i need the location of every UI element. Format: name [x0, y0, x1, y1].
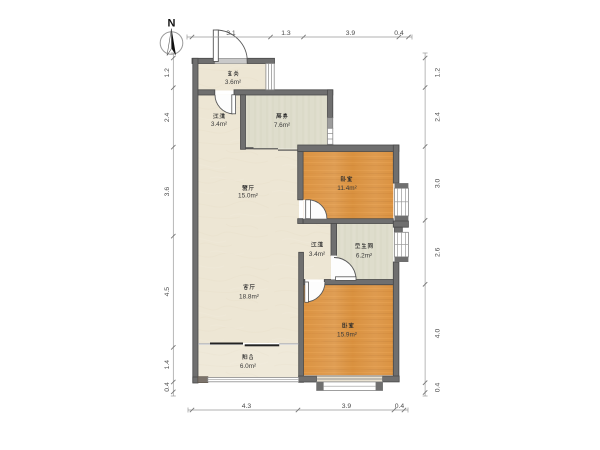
svg-text:11.4m²: 11.4m² [337, 185, 356, 192]
svg-text:3.4m²: 3.4m² [309, 251, 325, 258]
svg-text:18.8m²: 18.8m² [239, 294, 259, 301]
svg-text:15.9m²: 15.9m² [337, 332, 357, 339]
svg-text:3.1: 3.1 [226, 30, 236, 37]
svg-text:1.2: 1.2 [434, 68, 441, 78]
svg-text:6.2m²: 6.2m² [356, 253, 372, 260]
svg-text:0.4: 0.4 [434, 383, 441, 393]
svg-text:4.5: 4.5 [164, 287, 171, 297]
svg-text:2.4: 2.4 [434, 112, 441, 122]
svg-text:4.3: 4.3 [242, 403, 252, 410]
svg-text:2.4: 2.4 [164, 112, 171, 122]
svg-text:6.0m²: 6.0m² [240, 363, 256, 370]
svg-text:0.4: 0.4 [395, 403, 405, 410]
svg-text:3.9: 3.9 [342, 403, 352, 410]
svg-text:1.2: 1.2 [164, 68, 171, 78]
svg-text:1.4: 1.4 [164, 360, 171, 370]
svg-text:0.4: 0.4 [394, 30, 404, 37]
svg-text:2.6: 2.6 [434, 247, 441, 257]
svg-text:3.0: 3.0 [434, 178, 441, 188]
svg-text:15.0m²: 15.0m² [238, 193, 258, 200]
svg-text:1.3: 1.3 [281, 30, 291, 37]
svg-text:3.9: 3.9 [346, 30, 356, 37]
svg-text:4.0: 4.0 [434, 329, 441, 339]
svg-text:N: N [168, 18, 176, 30]
svg-text:3.4m²: 3.4m² [211, 121, 227, 128]
svg-text:3.6m²: 3.6m² [225, 79, 241, 86]
svg-text:0.4: 0.4 [164, 382, 171, 392]
svg-text:7.6m²: 7.6m² [274, 122, 290, 129]
svg-text:3.6: 3.6 [164, 187, 171, 197]
